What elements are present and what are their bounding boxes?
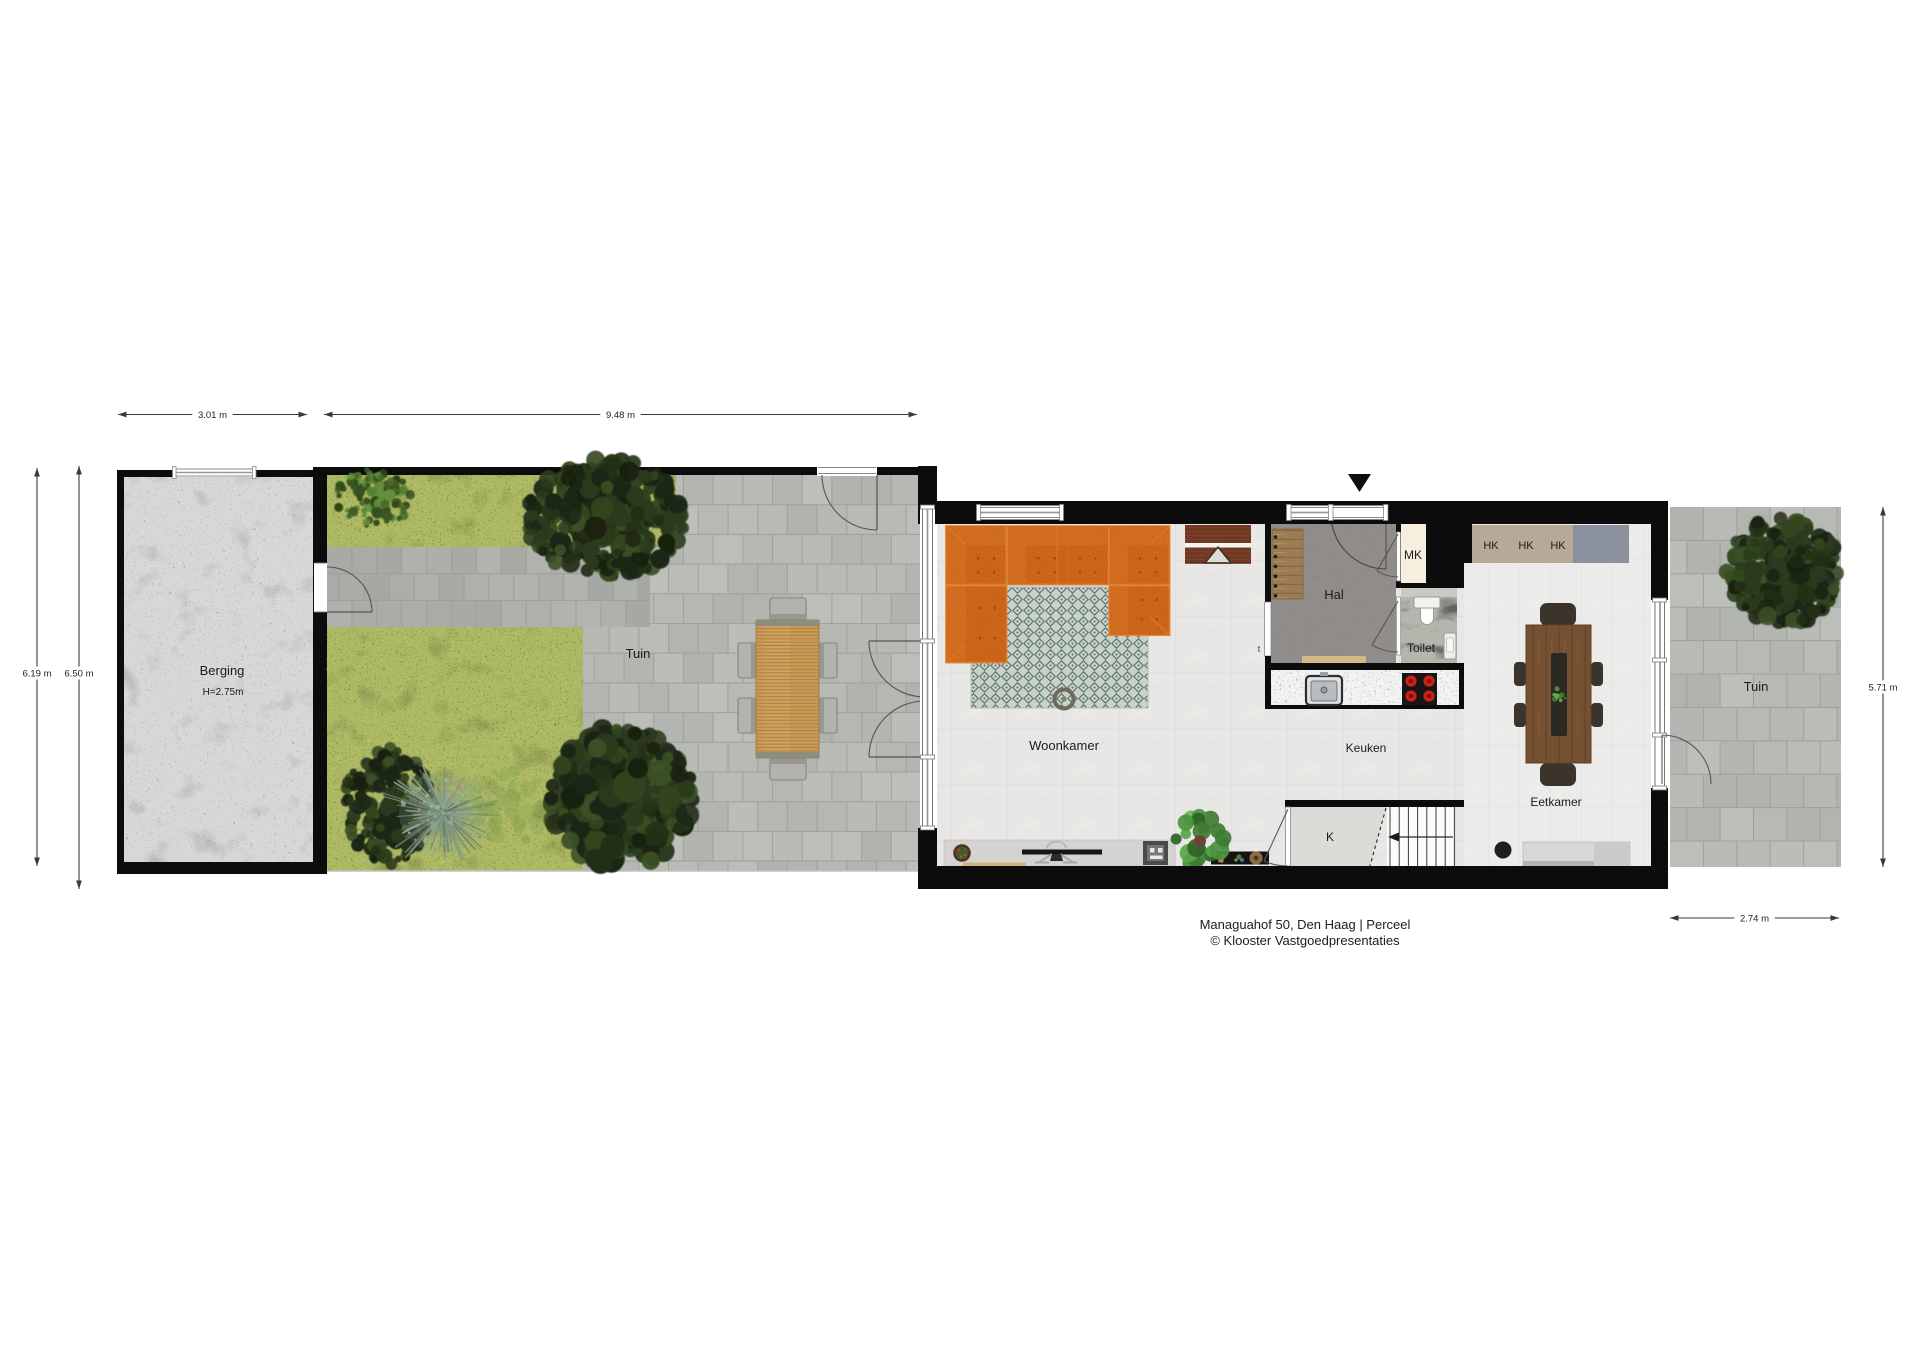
- svg-text:3.01 m: 3.01 m: [198, 410, 227, 421]
- svg-text:Keuken: Keuken: [1346, 741, 1387, 755]
- svg-text:Woonkamer: Woonkamer: [1029, 738, 1100, 753]
- svg-text:HK: HK: [1550, 540, 1566, 552]
- svg-text:Toilet: Toilet: [1407, 641, 1436, 655]
- svg-text:Managuahof 50, Den Haag | Perc: Managuahof 50, Den Haag | Perceel: [1200, 917, 1411, 932]
- svg-text:5.71 m: 5.71 m: [1868, 682, 1897, 693]
- svg-text:Hal: Hal: [1324, 587, 1344, 602]
- svg-text:6.19 m: 6.19 m: [22, 668, 51, 679]
- svg-text:Tuin: Tuin: [1744, 679, 1769, 694]
- svg-text:© Klooster Vastgoedpresentatie: © Klooster Vastgoedpresentaties: [1210, 933, 1400, 948]
- svg-text:2.74 m: 2.74 m: [1740, 913, 1769, 924]
- svg-text:MK: MK: [1404, 548, 1422, 562]
- svg-text:Eetkamer: Eetkamer: [1530, 795, 1581, 809]
- svg-text:HK: HK: [1483, 540, 1499, 552]
- svg-text:Tuin: Tuin: [626, 646, 651, 661]
- svg-text:6.50 m: 6.50 m: [64, 668, 93, 679]
- svg-text:9.48 m: 9.48 m: [606, 410, 635, 421]
- svg-text:Berging: Berging: [200, 663, 245, 678]
- svg-text:HK: HK: [1518, 540, 1534, 552]
- svg-text:H=2.75m: H=2.75m: [203, 687, 244, 698]
- svg-text:K: K: [1326, 830, 1334, 844]
